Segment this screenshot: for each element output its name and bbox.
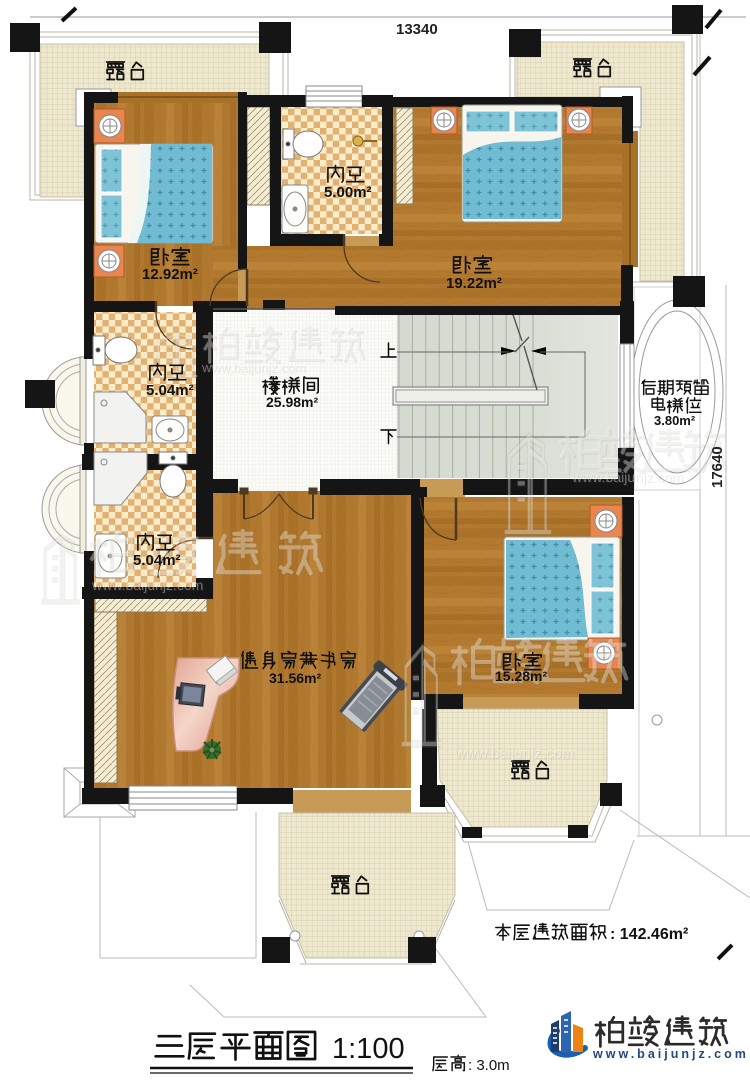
svg-text:25.98m²: 25.98m² bbox=[266, 394, 318, 410]
svg-text:15.28m²: 15.28m² bbox=[495, 668, 547, 684]
svg-text:5.00m²: 5.00m² bbox=[324, 184, 372, 201]
svg-text:3.80m²: 3.80m² bbox=[654, 413, 696, 428]
svg-text:: 142.46m²: : 142.46m² bbox=[610, 926, 688, 943]
svg-text:www.baijunjz.com: www.baijunjz.com bbox=[91, 577, 203, 593]
svg-text:5.04m²: 5.04m² bbox=[146, 382, 194, 399]
svg-text:: 3.0m: : 3.0m bbox=[468, 1057, 510, 1074]
svg-text:www.baijunjz.com: www.baijunjz.com bbox=[571, 469, 683, 485]
svg-text:1:100: 1:100 bbox=[332, 1033, 405, 1065]
svg-text:13340: 13340 bbox=[396, 21, 438, 38]
svg-text:31.56m²: 31.56m² bbox=[269, 670, 321, 686]
svg-text:17640: 17640 bbox=[709, 446, 726, 488]
svg-text:5.04m²: 5.04m² bbox=[133, 552, 181, 569]
svg-text:12.92m²: 12.92m² bbox=[142, 266, 198, 283]
svg-text:www.baijunjz.com: www.baijunjz.com bbox=[592, 1047, 749, 1061]
svg-text:www.baijunjz.com: www.baijunjz.com bbox=[454, 745, 574, 762]
svg-text:19.22m²: 19.22m² bbox=[446, 275, 502, 292]
svg-text:www.baijunjz.com: www.baijunjz.com bbox=[201, 360, 305, 375]
